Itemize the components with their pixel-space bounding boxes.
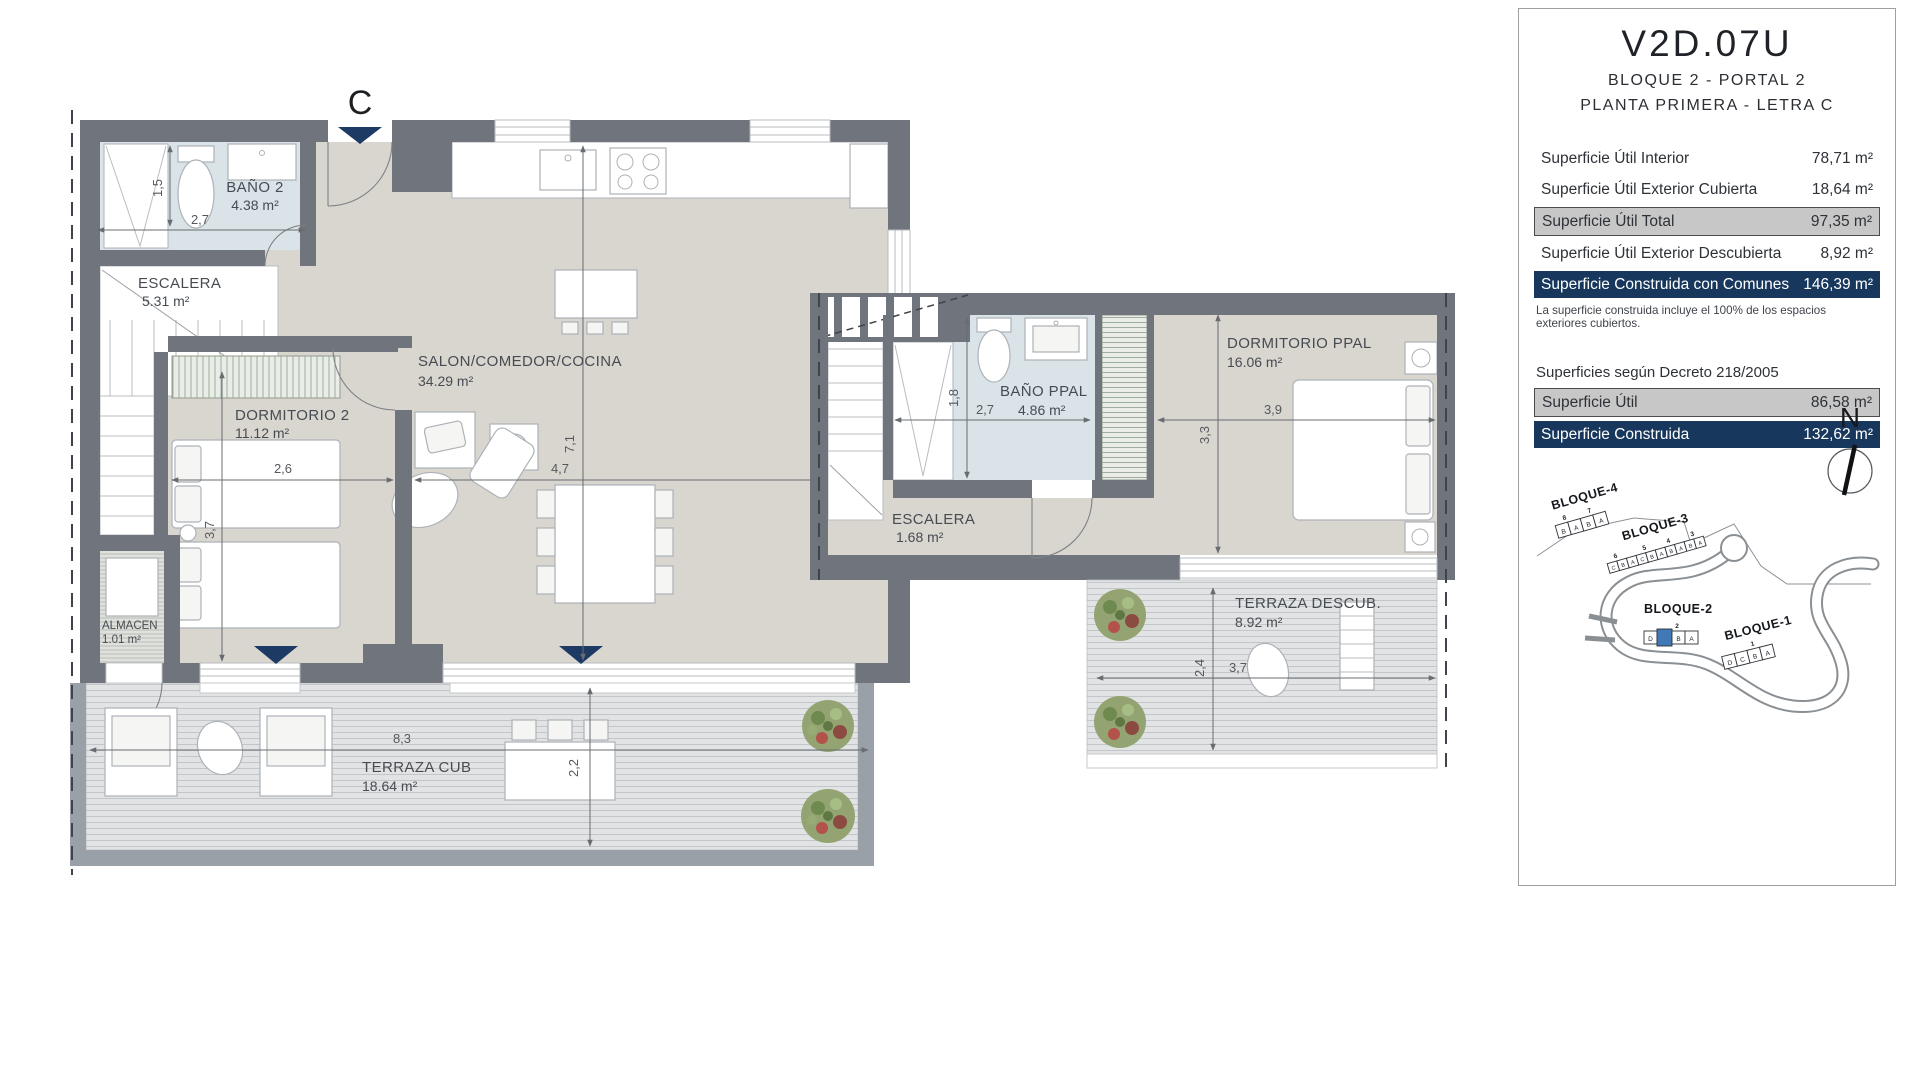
svg-text:7: 7 [1587,507,1593,515]
surface-value: 18,64 m² [1812,181,1873,199]
surface-label: Superficie Construida [1541,426,1689,444]
site-plan: BLOQUE-4 8 7 B A B A BLOQUE-3 6 5 4 3 C … [1519,456,1894,756]
plant-icon [1094,696,1146,748]
svg-text:TERRAZA DESCUB.: TERRAZA DESCUB. [1235,595,1381,612]
svg-text:B: B [1676,636,1680,643]
svg-text:TERRAZA CUB: TERRAZA CUB [362,759,471,776]
svg-text:1.68 m²: 1.68 m² [896,529,944,545]
surface-value: 97,35 m² [1811,213,1872,231]
svg-text:5: 5 [1642,544,1648,552]
room-dormitorio2 [172,356,340,628]
room-escalera-upper [828,315,883,520]
svg-text:11.12 m²: 11.12 m² [235,425,290,441]
site-block-2: BLOQUE-2 2 D B A [1644,602,1713,646]
surface-row: Superficie Útil Exterior Descubierta 8,9… [1534,240,1880,267]
svg-text:1,8: 1,8 [946,389,961,407]
svg-text:N: N [1840,402,1860,433]
surface-value: 8,92 m² [1820,245,1873,263]
svg-text:DORMITORIO PPAL: DORMITORIO PPAL [1227,335,1372,352]
svg-text:18.64 m²: 18.64 m² [362,778,418,794]
svg-text:ESCALERA: ESCALERA [892,511,975,528]
plant-icon [1094,589,1146,641]
svg-text:1: 1 [1750,640,1756,648]
surface-label: Superficie Construida con Comunes [1541,276,1789,294]
svg-text:8.92 m²: 8.92 m² [1235,614,1283,630]
room-almacen [100,551,164,663]
block-portal: BLOQUE 2 - PORTAL 2 [1519,72,1895,90]
svg-text:3: 3 [1690,531,1696,539]
svg-text:ESCALERA: ESCALERA [138,275,221,292]
plant-icon [801,789,855,843]
svg-text:BLOQUE-3: BLOQUE-3 [1620,511,1690,543]
floor-plan-sheet: C 2,7 1,5 2,6 3,7 4,7 [0,0,1920,1080]
highlighted-unit [1657,629,1672,646]
decree-title: Superficies según Decreto 218/2005 [1536,364,1878,381]
surface-label: Superficie Útil Interior [1541,150,1689,168]
svg-text:BLOQUE-4: BLOQUE-4 [1550,480,1620,512]
svg-text:8: 8 [1562,514,1568,522]
svg-text:2,4: 2,4 [1192,659,1207,677]
svg-text:ALMACEN: ALMACEN [102,620,158,632]
svg-text:4,7: 4,7 [551,461,569,476]
svg-text:6: 6 [1613,553,1619,561]
svg-text:4.38 m²: 4.38 m² [231,197,279,213]
svg-text:2,7: 2,7 [191,212,209,227]
surface-note: La superficie construida incluye el 100%… [1536,304,1878,330]
svg-text:3,7: 3,7 [1229,660,1247,675]
svg-text:DORMITORIO 2: DORMITORIO 2 [235,407,350,424]
svg-text:2,6: 2,6 [274,461,292,476]
site-block-1: BLOQUE-1 1 D C B A [1715,613,1799,669]
surface-label: Superficie Útil [1542,394,1638,412]
svg-text:SALON/COMEDOR/COCINA: SALON/COMEDOR/COCINA [418,353,622,370]
svg-text:7,1: 7,1 [562,435,577,453]
svg-text:34.29 m²: 34.29 m² [418,373,474,389]
entrance-letter: C [348,84,373,122]
unit-code: V2D.07U [1519,23,1895,65]
svg-text:BLOQUE-2: BLOQUE-2 [1644,602,1713,616]
surface-row: Superficie Útil Exterior Cubierta 18,64 … [1534,176,1880,203]
surface-label: Superficie Útil Exterior Cubierta [1541,181,1757,199]
svg-text:2,2: 2,2 [566,759,581,777]
svg-text:5.31 m²: 5.31 m² [142,293,190,309]
room-bano2 [100,142,308,250]
svg-text:BAÑO 2: BAÑO 2 [226,179,283,196]
wardrobe [1102,315,1147,480]
svg-text:3,9: 3,9 [1264,402,1282,417]
surface-row-constructed: Superficie Construida con Comunes 146,39… [1534,271,1880,298]
surface-row-total: Superficie Útil Total 97,35 m² [1534,207,1880,236]
svg-text:A: A [1689,636,1694,643]
svg-text:3,3: 3,3 [1197,426,1212,444]
surface-value: 78,71 m² [1812,150,1873,168]
svg-text:1,5: 1,5 [150,179,165,197]
site-block-3: BLOQUE-3 6 5 4 3 C B A C B A B A B A [1599,508,1706,573]
svg-text:4.86 m²: 4.86 m² [1018,402,1066,418]
svg-text:4: 4 [1666,537,1672,545]
svg-text:D: D [1648,636,1653,643]
svg-text:2,7: 2,7 [976,402,994,417]
surface-label: Superficie Útil Exterior Descubierta [1541,245,1781,263]
floor-letter: PLANTA PRIMERA - LETRA C [1519,97,1895,115]
svg-text:3,7: 3,7 [202,521,217,539]
svg-text:1.01 m²: 1.01 m² [102,634,141,646]
surface-value: 146,39 m² [1803,276,1873,294]
plan-upper-floor: 2,7 1,8 3,9 3,3 3,7 2,4 BAÑO PPAL 4.86 m… [640,230,1470,790]
info-panel: V2D.07U BLOQUE 2 - PORTAL 2 PLANTA PRIME… [1518,8,1896,886]
svg-text:BAÑO PPAL: BAÑO PPAL [1000,383,1088,400]
surface-label: Superficie Útil Total [1542,213,1674,231]
svg-text:BLOQUE-1: BLOQUE-1 [1723,613,1793,643]
site-block-4: BLOQUE-4 8 7 B A B A [1548,480,1627,538]
surface-row: Superficie Útil Interior 78,71 m² [1534,145,1880,172]
svg-text:2: 2 [1675,623,1679,630]
svg-text:8,3: 8,3 [393,731,411,746]
svg-text:16.06 m²: 16.06 m² [1227,354,1283,370]
